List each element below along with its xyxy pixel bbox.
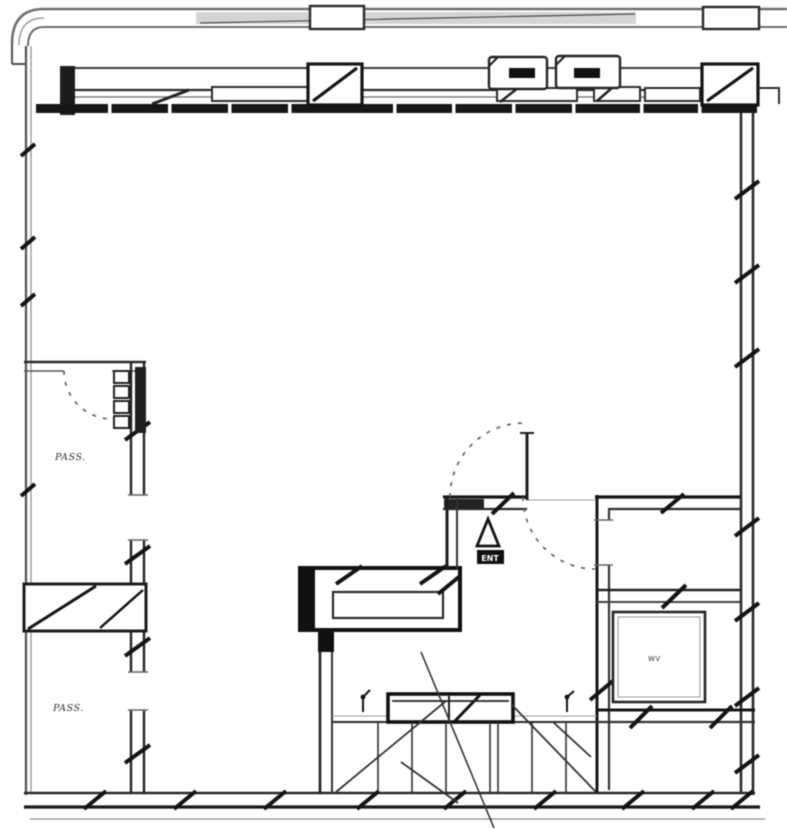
room-label-pass-upper: PASS. xyxy=(54,452,86,463)
unit-label-strip xyxy=(509,68,535,78)
floor-plan-page: PASS. PASS. ENT xyxy=(0,0,787,830)
door-swing-arc xyxy=(64,371,112,419)
window-panel xyxy=(212,87,308,101)
room-label-pass-lower: PASS. xyxy=(52,703,84,714)
canopy-column-box-left xyxy=(310,6,364,29)
balcony-units xyxy=(489,56,620,89)
bottom-exterior-wall xyxy=(24,791,765,819)
closet-wall-unit xyxy=(300,566,460,793)
top-window-wall xyxy=(36,64,779,115)
staircase xyxy=(332,652,597,828)
floor-plan-drawing: PASS. PASS. ENT xyxy=(0,0,787,830)
left-rooms: PASS. PASS. xyxy=(24,362,150,793)
window-panel xyxy=(645,88,700,101)
radiator xyxy=(114,367,146,433)
entry-tag-label: ENT xyxy=(481,554,499,563)
right-exterior-wall xyxy=(735,103,759,795)
left-exterior-wall xyxy=(21,46,35,795)
unit-label-strip xyxy=(574,68,600,78)
stair-direction-marker xyxy=(361,690,370,712)
stair-direction-marker xyxy=(565,691,574,712)
shaft-label: WV xyxy=(648,655,661,663)
door-swing-arc xyxy=(523,497,595,569)
stair-landing-box xyxy=(388,694,513,722)
balcony-canopy xyxy=(12,6,787,64)
triangle-marker-icon xyxy=(477,519,499,546)
right-rooms: WV xyxy=(590,494,755,793)
canopy-column-box-right xyxy=(703,7,759,29)
door-swing-arc xyxy=(450,423,524,497)
hatched-wall-band xyxy=(24,584,146,631)
closet-shelf xyxy=(333,592,443,618)
